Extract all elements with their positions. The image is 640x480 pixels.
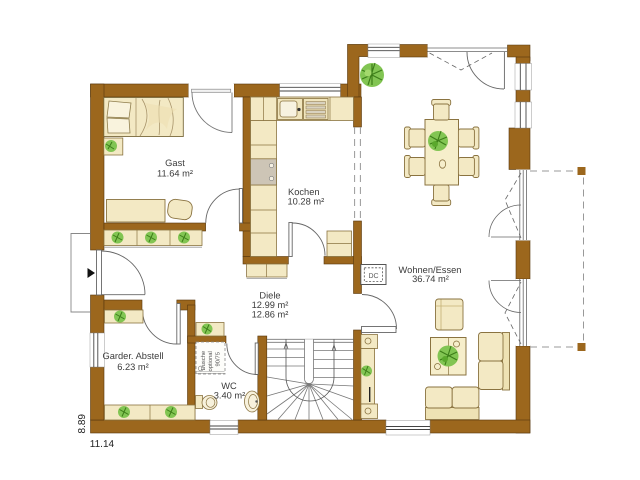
svg-text:8.89: 8.89 [77, 414, 88, 434]
svg-text:Garder. Abstell: Garder. Abstell [103, 351, 164, 361]
svg-text:Diele: Diele [259, 291, 280, 301]
svg-text:11.14: 11.14 [90, 439, 115, 450]
svg-text:WC: WC [221, 381, 237, 391]
svg-text:Gast: Gast [165, 158, 185, 168]
svg-text:90/75: 90/75 [215, 352, 222, 367]
svg-text:DC: DC [368, 273, 378, 280]
svg-text:Kochen: Kochen [288, 187, 320, 197]
svg-text:optional: optional [207, 351, 214, 371]
svg-text:36.74 m²: 36.74 m² [412, 274, 449, 284]
svg-text:12.86 m²: 12.86 m² [252, 309, 289, 319]
svg-text:10.28 m²: 10.28 m² [288, 197, 325, 207]
svg-text:11.64 m²: 11.64 m² [157, 169, 193, 179]
svg-text:3.40 m²: 3.40 m² [214, 391, 246, 401]
svg-text:6.23 m²: 6.23 m² [117, 362, 149, 372]
svg-text:Dusche: Dusche [200, 351, 207, 371]
